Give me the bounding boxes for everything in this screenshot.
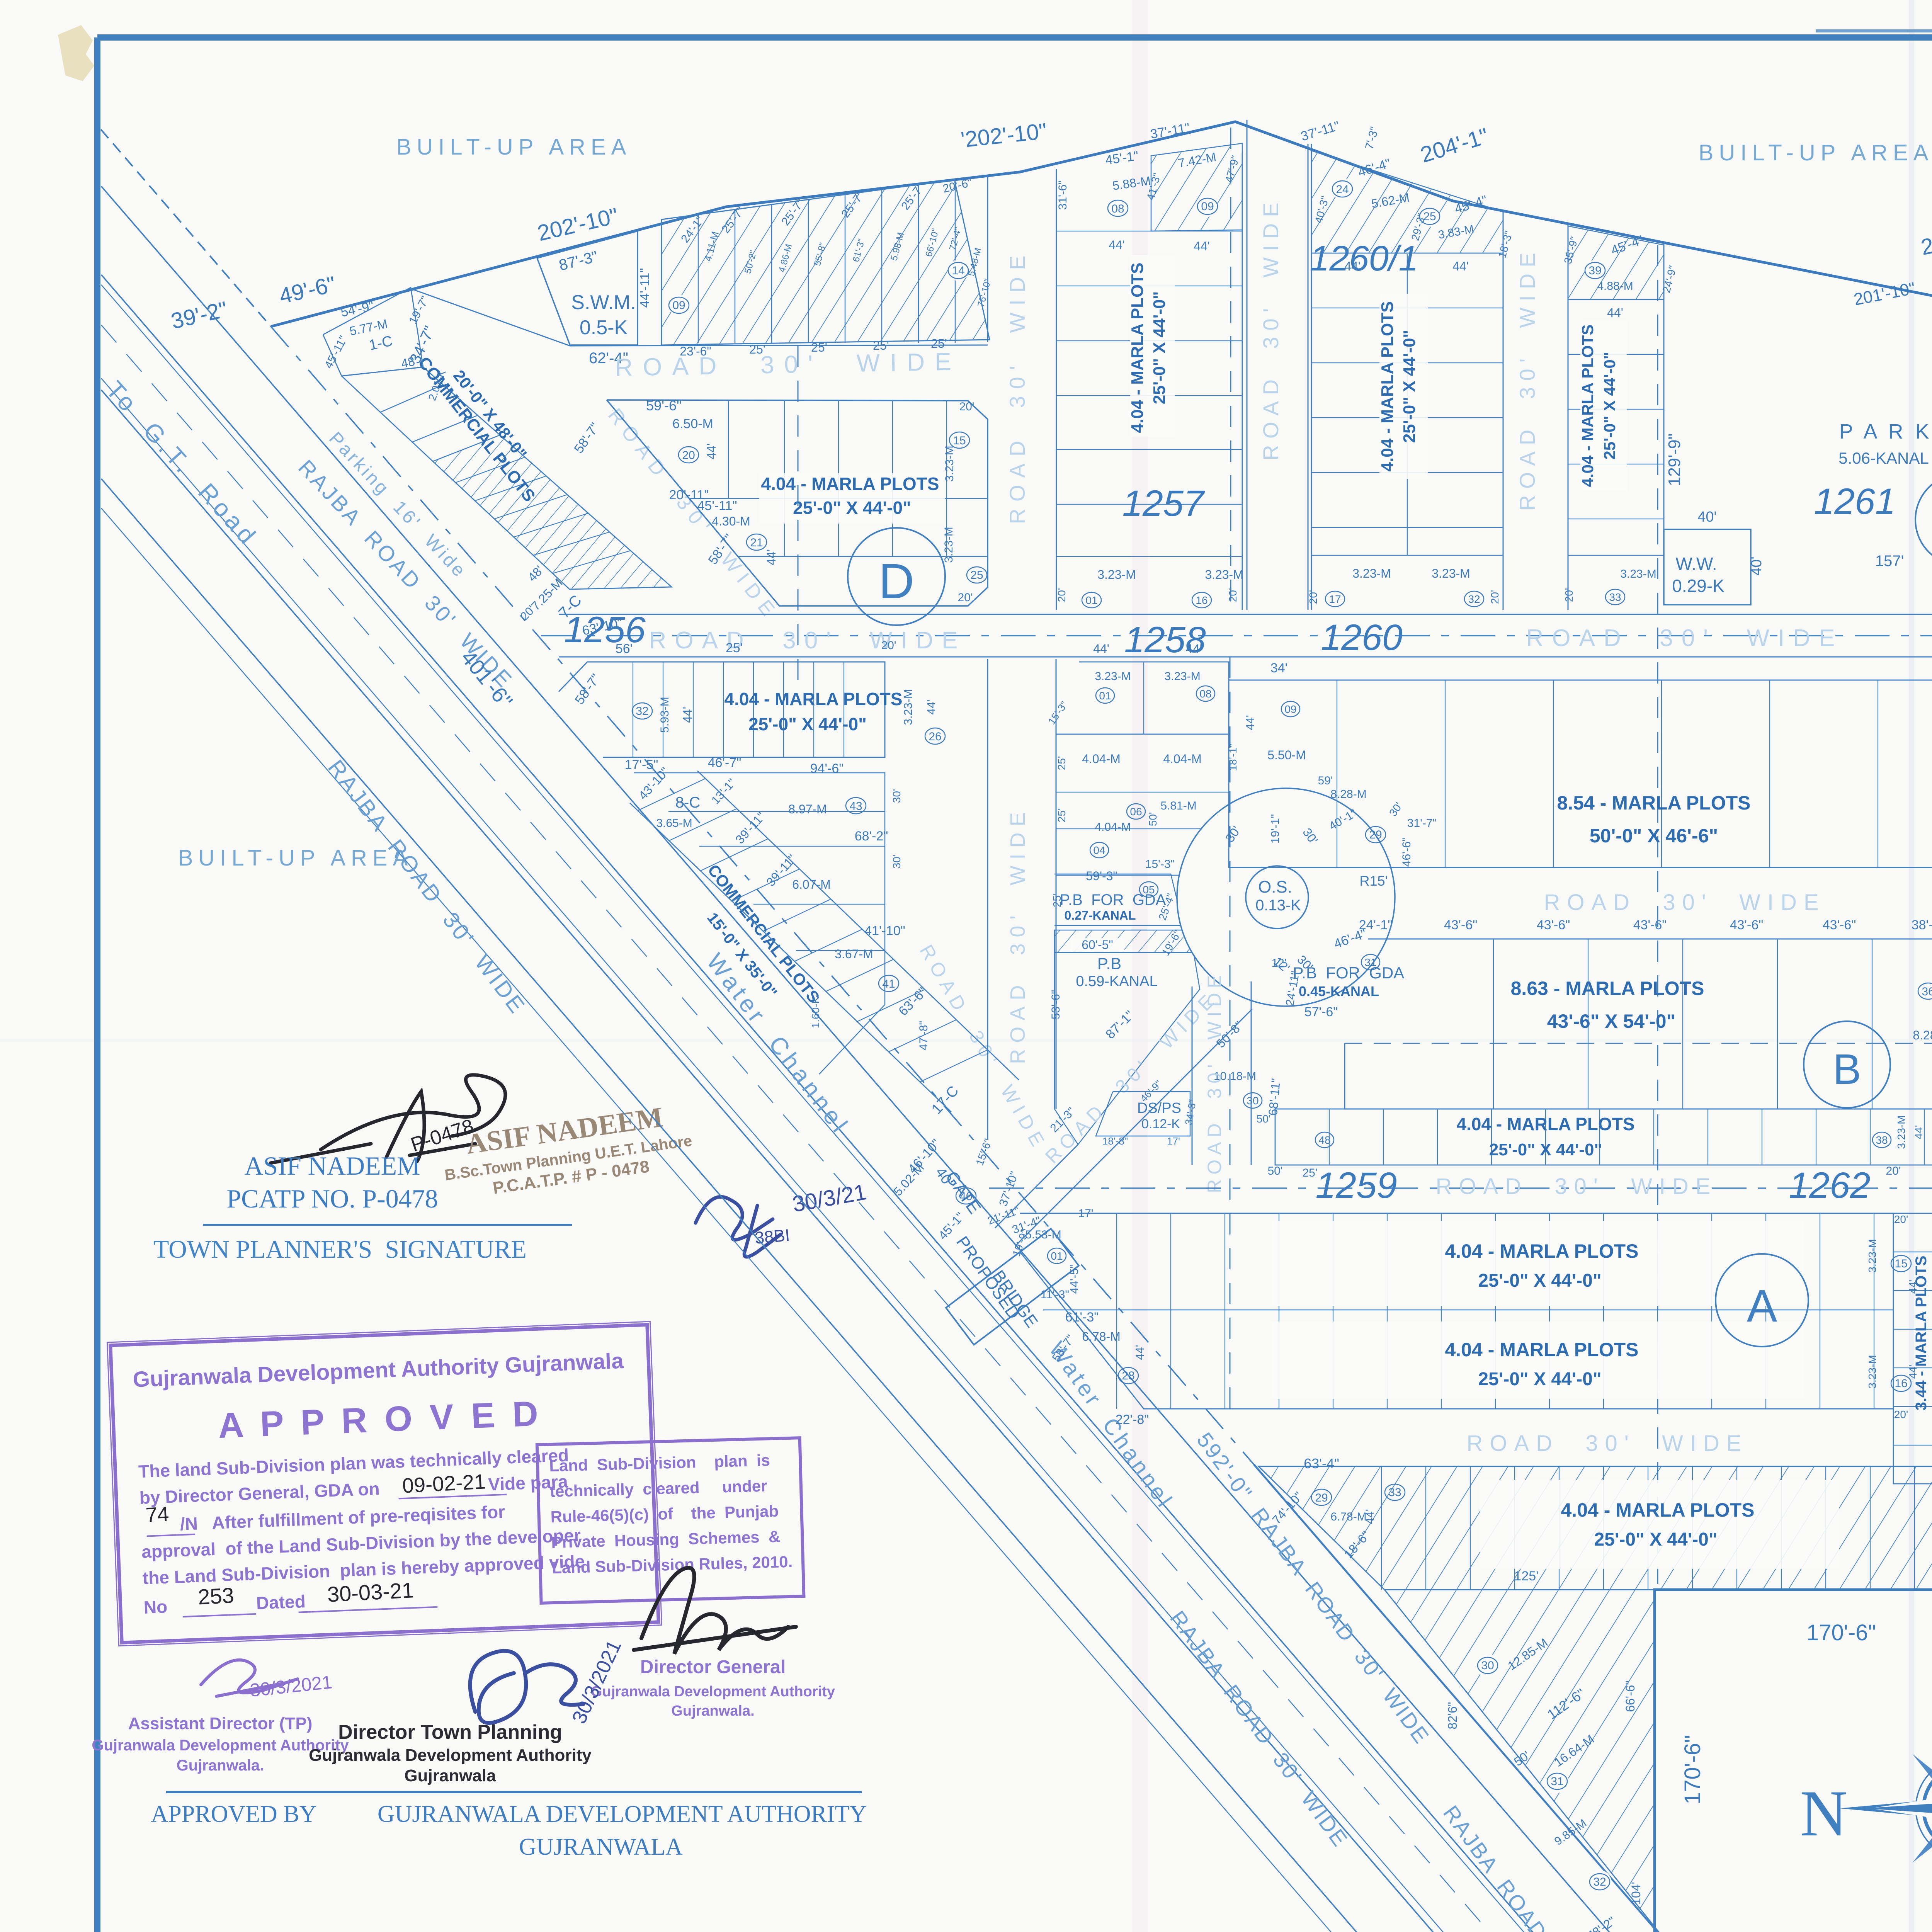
svg-text:ROAD 30' WIDE: ROAD 30' WIDE — [1005, 248, 1029, 524]
svg-text:Gujranwala Development Authori: Gujranwala Development Authority — [309, 1746, 592, 1765]
svg-text:1261: 1261 — [1814, 481, 1895, 522]
svg-text:104': 104' — [1629, 1882, 1643, 1905]
svg-text:ROAD 30' WIDE: ROAD 30' WIDE — [1544, 890, 1825, 915]
svg-text:19'-1": 19'-1" — [1269, 814, 1282, 844]
svg-text:P A R K: P A R K — [1839, 420, 1932, 443]
svg-text:3.44 - MARLA PLOTS: 3.44 - MARLA PLOTS — [1913, 1256, 1930, 1411]
svg-text:01: 01 — [1051, 1250, 1063, 1262]
svg-text:36: 36 — [1922, 985, 1932, 998]
svg-text:40: 40 — [959, 1190, 972, 1203]
svg-text:5.50-M: 5.50-M — [1267, 748, 1306, 762]
svg-text:APPROVED BY: APPROVED BY — [151, 1801, 317, 1827]
svg-text:38BI: 38BI — [754, 1226, 791, 1248]
svg-text:1260/1: 1260/1 — [1310, 239, 1418, 278]
svg-text:44': 44' — [1093, 642, 1109, 656]
svg-text:20': 20' — [1886, 1165, 1901, 1177]
svg-text:08: 08 — [1199, 688, 1211, 700]
svg-text:29: 29 — [1315, 1492, 1328, 1504]
svg-text:157': 157' — [1875, 553, 1904, 570]
svg-text:44': 44' — [1913, 1125, 1925, 1139]
svg-text:50': 50' — [1147, 812, 1159, 827]
svg-text:BUILT-UP AREA: BUILT-UP AREA — [1699, 140, 1932, 165]
svg-text:170'-6": 170'-6" — [1680, 1735, 1705, 1804]
svg-text:3.23-M: 3.23-M — [1164, 670, 1200, 683]
svg-text:30: 30 — [1481, 1659, 1494, 1672]
svg-text:43'-6" X 54'-0": 43'-6" X 54'-0" — [1547, 1010, 1675, 1032]
svg-text:4.04 - MARLA PLOTS: 4.04 - MARLA PLOTS — [761, 474, 939, 494]
svg-text:Assistant Director (TP): Assistant Director (TP) — [128, 1714, 313, 1733]
svg-text:1262: 1262 — [1789, 1165, 1870, 1206]
svg-text:5.93-M: 5.93-M — [658, 697, 671, 733]
svg-text:30': 30' — [891, 789, 903, 803]
svg-text:0.27-KANAL: 0.27-KANAL — [1065, 908, 1136, 922]
svg-text:60'-5": 60'-5" — [1082, 938, 1113, 952]
svg-text:43'-6": 43'-6" — [1823, 918, 1856, 932]
svg-text:25'-0" X 44'-0": 25'-0" X 44'-0" — [1600, 352, 1619, 459]
svg-text:125': 125' — [1514, 1569, 1538, 1583]
svg-text:8.28-M: 8.28-M — [1913, 1028, 1932, 1042]
svg-text:4.04 - MARLA PLOTS: 4.04 - MARLA PLOTS — [1445, 1339, 1639, 1361]
svg-text:44': 44' — [1364, 1509, 1376, 1524]
svg-text:25'-0" X 44'-0": 25'-0" X 44'-0" — [1478, 1369, 1601, 1389]
svg-text:GUJRANWALA: GUJRANWALA — [519, 1834, 683, 1860]
svg-text:44': 44' — [680, 707, 694, 723]
svg-text:1259: 1259 — [1315, 1165, 1397, 1206]
svg-text:44': 44' — [1452, 259, 1469, 273]
svg-text:09: 09 — [1284, 703, 1296, 715]
svg-text:44'-11": 44'-11" — [638, 268, 652, 308]
svg-text:17': 17' — [1167, 1135, 1180, 1147]
svg-text:17: 17 — [1329, 593, 1341, 605]
svg-text:44': 44' — [1134, 1345, 1146, 1360]
svg-text:63'-4": 63'-4" — [1304, 1456, 1339, 1471]
svg-text:25'-0" X 44'-0": 25'-0" X 44'-0" — [1594, 1529, 1717, 1550]
svg-text:61'-3": 61'-3" — [1065, 1310, 1099, 1325]
svg-text:TOWN PLANNER'S SIGNATURE: TOWN PLANNER'S SIGNATURE — [153, 1235, 527, 1264]
svg-text:0.59-KANAL: 0.59-KANAL — [1076, 973, 1157, 990]
svg-text:44'-5": 44'-5" — [1068, 1264, 1081, 1294]
svg-text:25'-0" X 44'-0": 25'-0" X 44'-0" — [1400, 330, 1419, 443]
svg-text:44': 44' — [1244, 715, 1257, 730]
svg-text:8.54 - MARLA PLOTS: 8.54 - MARLA PLOTS — [1557, 792, 1751, 814]
svg-text:57'-6": 57'-6" — [1304, 1005, 1338, 1019]
svg-text:0.45-KANAL: 0.45-KANAL — [1299, 983, 1379, 999]
svg-text:01: 01 — [1099, 690, 1111, 702]
svg-text:ROAD 30' WIDE: ROAD 30' WIDE — [649, 627, 966, 654]
svg-text:1257: 1257 — [1122, 483, 1205, 524]
svg-text:31'-7": 31'-7" — [1407, 817, 1437, 830]
svg-text:ROAD 30' WIDE: ROAD 30' WIDE — [1259, 196, 1283, 460]
svg-text:3.23-M: 3.23-M — [1352, 566, 1391, 580]
svg-text:ROAD 30' WIDE: ROAD 30' WIDE — [1515, 247, 1539, 510]
svg-text:5.81-M: 5.81-M — [1160, 799, 1196, 812]
svg-text:BUILT-UP AREA: BUILT-UP AREA — [178, 845, 413, 871]
svg-text:3.23-M: 3.23-M — [942, 527, 955, 563]
svg-text:D: D — [879, 554, 914, 609]
svg-text:Gujranwala.: Gujranwala. — [177, 1757, 264, 1774]
svg-text:170'-6": 170'-6" — [1806, 1620, 1876, 1645]
svg-text:31: 31 — [1551, 1775, 1563, 1788]
svg-text:66'-6": 66'-6" — [1623, 1680, 1637, 1712]
svg-text:0.13-K: 0.13-K — [1255, 897, 1301, 914]
svg-text:BUILT-UP AREA: BUILT-UP AREA — [396, 134, 632, 160]
svg-text:253: 253 — [197, 1583, 235, 1609]
svg-text:25: 25 — [970, 569, 983, 582]
svg-text:12': 12' — [1271, 957, 1286, 969]
svg-text:3.23-M: 3.23-M — [902, 689, 915, 725]
svg-text:25': 25' — [1056, 756, 1068, 770]
svg-text:94'-6": 94'-6" — [810, 761, 844, 776]
svg-text:129'-9": 129'-9" — [1665, 434, 1684, 486]
svg-text:41'-10": 41'-10" — [864, 923, 905, 938]
svg-text:30: 30 — [1247, 1095, 1259, 1107]
svg-text:41: 41 — [882, 978, 895, 990]
svg-text:PCATP NO. P-0478: PCATP NO. P-0478 — [226, 1184, 438, 1213]
svg-text:32: 32 — [636, 705, 648, 718]
svg-text:1.60-K: 1.60-K — [810, 996, 821, 1028]
svg-text:B: B — [1833, 1046, 1861, 1093]
svg-text:68'-2": 68'-2" — [855, 829, 888, 844]
svg-text:11'-3": 11'-3" — [1041, 1288, 1069, 1301]
svg-text:4.04 - MARLA PLOTS: 4.04 - MARLA PLOTS — [1578, 325, 1597, 487]
svg-text:4.30-M: 4.30-M — [712, 514, 750, 528]
svg-text:38'-6": 38'-6" — [1912, 918, 1932, 932]
svg-text:15: 15 — [953, 434, 966, 447]
svg-text:17': 17' — [1078, 1207, 1093, 1220]
svg-text:16: 16 — [1196, 594, 1207, 606]
svg-text:25': 25' — [1056, 808, 1068, 823]
svg-text:44': 44' — [704, 443, 718, 459]
svg-text:20': 20' — [1307, 590, 1319, 604]
svg-text:8.63 - MARLA PLOTS: 8.63 - MARLA PLOTS — [1511, 978, 1704, 999]
svg-text:A: A — [1747, 1281, 1777, 1332]
svg-text:74: 74 — [145, 1502, 169, 1527]
svg-text:08: 08 — [1111, 202, 1124, 215]
svg-text:30': 30' — [891, 855, 903, 869]
svg-text:09-02-21: 09-02-21 — [402, 1470, 486, 1497]
svg-text:44': 44' — [1194, 239, 1210, 253]
svg-text:4.04 - MARLA PLOTS: 4.04 - MARLA PLOTS — [724, 689, 903, 709]
svg-text:S.W.M.: S.W.M. — [571, 291, 636, 314]
svg-text:59'-6": 59'-6" — [646, 398, 682, 413]
svg-text:46'-7": 46'-7" — [708, 755, 742, 770]
svg-text:28: 28 — [1122, 1369, 1134, 1382]
svg-text:29: 29 — [1369, 828, 1382, 841]
svg-text:4.04 - MARLA PLOTS: 4.04 - MARLA PLOTS — [1457, 1114, 1635, 1134]
svg-text:50': 50' — [1267, 1165, 1282, 1177]
svg-text:20': 20' — [1056, 588, 1068, 602]
svg-text:3.23-M: 3.23-M — [1866, 1355, 1878, 1388]
svg-text:56': 56' — [616, 641, 633, 656]
svg-text:0.12-K: 0.12-K — [1141, 1117, 1180, 1131]
svg-text:3.23-M: 3.23-M — [1895, 1115, 1907, 1149]
svg-text:26: 26 — [929, 730, 941, 743]
svg-text:3.23-M: 3.23-M — [1432, 566, 1470, 580]
svg-text:40': 40' — [1697, 509, 1717, 525]
svg-text:25': 25' — [1051, 893, 1063, 908]
svg-text:33: 33 — [1609, 591, 1621, 603]
svg-text:6.07-M: 6.07-M — [792, 878, 831, 891]
svg-text:25'-0" X 44'-0": 25'-0" X 44'-0" — [1489, 1140, 1602, 1159]
svg-text:20': 20' — [1489, 590, 1501, 604]
svg-text:5.06-KANAL: 5.06-KANAL — [1838, 449, 1929, 467]
svg-text:W.W.: W.W. — [1675, 554, 1717, 574]
svg-text:16: 16 — [1895, 1377, 1907, 1390]
svg-text:20': 20' — [1563, 588, 1575, 602]
svg-text:25'-0" X 44'-0": 25'-0" X 44'-0" — [1478, 1270, 1601, 1291]
svg-text:59': 59' — [1318, 774, 1333, 787]
svg-text:09: 09 — [672, 299, 685, 312]
svg-text:3.23-M: 3.23-M — [1097, 568, 1136, 582]
svg-text:4.88-M: 4.88-M — [1597, 280, 1633, 293]
svg-text:8.97-M: 8.97-M — [788, 802, 827, 816]
svg-text:31: 31 — [1364, 956, 1376, 968]
svg-text:20': 20' — [1894, 1213, 1908, 1225]
svg-text:ROAD 30' WIDE: ROAD 30' WIDE — [1204, 971, 1225, 1193]
svg-text:3.65-M: 3.65-M — [656, 817, 692, 830]
svg-text:20': 20' — [1227, 588, 1239, 602]
svg-text:21: 21 — [750, 536, 763, 549]
svg-text:44': 44' — [1186, 642, 1202, 656]
svg-text:82'6": 82'6" — [1446, 1702, 1459, 1730]
svg-text:38: 38 — [1876, 1134, 1888, 1146]
svg-text:3.23-M: 3.23-M — [1866, 1239, 1878, 1272]
svg-text:39: 39 — [1588, 264, 1601, 277]
svg-text:50'-0" X 46'-6": 50'-0" X 46'-6" — [1590, 825, 1718, 847]
svg-text:06: 06 — [1130, 806, 1142, 818]
svg-text:01: 01 — [1085, 594, 1097, 606]
svg-text:48: 48 — [1318, 1134, 1330, 1146]
svg-text:20: 20 — [682, 449, 695, 462]
svg-text:15: 15 — [1895, 1257, 1907, 1270]
svg-text:44': 44' — [1607, 306, 1623, 320]
svg-text:53'-6": 53'-6" — [1049, 990, 1062, 1019]
svg-text:ROAD 30' WIDE: ROAD 30' WIDE — [1435, 1174, 1717, 1199]
svg-text:44': 44' — [764, 549, 778, 565]
svg-text:24: 24 — [1336, 183, 1349, 196]
svg-text:6.78-M: 6.78-M — [1330, 1510, 1366, 1523]
svg-text:17'-5": 17'-5" — [625, 757, 658, 772]
svg-text:4.04-M: 4.04-M — [1082, 752, 1121, 766]
svg-text:4.04 - MARLA PLOTS: 4.04 - MARLA PLOTS — [1561, 1499, 1755, 1521]
svg-text:N: N — [1800, 1777, 1848, 1850]
svg-text:44': 44' — [1109, 238, 1125, 252]
svg-text:43'-6": 43'-6" — [1537, 918, 1570, 932]
svg-text:43'-6": 43'-6" — [1444, 918, 1478, 932]
svg-text:P.B FOR GDA: P.B FOR GDA — [1060, 891, 1166, 908]
svg-text:43'-6": 43'-6" — [1730, 918, 1764, 932]
svg-text:ASIF NADEEM: ASIF NADEEM — [244, 1151, 420, 1180]
svg-text:43'-6": 43'-6" — [1633, 918, 1667, 932]
svg-text:40': 40' — [1748, 556, 1765, 576]
svg-text:15'-3": 15'-3" — [1145, 858, 1175, 871]
svg-text:P.B FOR GDA: P.B FOR GDA — [1293, 964, 1405, 982]
svg-text:46'-6": 46'-6" — [1400, 837, 1413, 867]
svg-text:1256: 1256 — [564, 609, 646, 650]
svg-text:O.S.: O.S. — [1258, 878, 1292, 896]
svg-text:30-03-21: 30-03-21 — [327, 1578, 414, 1607]
svg-text:4.04-M: 4.04-M — [1163, 752, 1202, 766]
svg-text:3.67-M: 3.67-M — [835, 947, 873, 961]
svg-text:ROAD 30' WIDE: ROAD 30' WIDE — [1466, 1431, 1748, 1456]
svg-text:Gujranwala Development Authori: Gujranwala Development Authority — [591, 1684, 835, 1700]
svg-text:Director Town Planning: Director Town Planning — [338, 1721, 562, 1743]
svg-text:44': 44' — [925, 699, 938, 714]
svg-text:4.04 - MARLA PLOTS: 4.04 - MARLA PLOTS — [1445, 1240, 1639, 1262]
svg-text:6.78-M: 6.78-M — [1082, 1330, 1121, 1344]
svg-text:20': 20' — [957, 591, 973, 604]
svg-text:6.50-M: 6.50-M — [672, 417, 713, 431]
svg-text:3.23-M: 3.23-M — [1095, 670, 1131, 683]
svg-text:4.04-M: 4.04-M — [1095, 821, 1131, 833]
svg-text:14: 14 — [952, 264, 964, 277]
svg-text:33: 33 — [1388, 1486, 1401, 1499]
svg-text:20': 20' — [1894, 1408, 1908, 1420]
svg-text:20': 20' — [881, 639, 896, 652]
svg-text:04: 04 — [1093, 844, 1105, 856]
svg-text:4.04 - MARLA PLOTS: 4.04 - MARLA PLOTS — [1128, 263, 1147, 433]
svg-text:0.5-K: 0.5-K — [580, 316, 628, 339]
svg-text:R15': R15' — [1360, 873, 1388, 889]
svg-text:25'-0" X 44'-0": 25'-0" X 44'-0" — [748, 714, 867, 734]
svg-text:1260: 1260 — [1321, 617, 1403, 658]
svg-text:32: 32 — [1468, 593, 1480, 605]
svg-text:8.28-M: 8.28-M — [1330, 788, 1366, 801]
svg-text:31'-6": 31'-6" — [1056, 180, 1069, 210]
svg-text:24'-1": 24'-1" — [1359, 918, 1393, 932]
svg-text:ROAD 30' WIDE: ROAD 30' WIDE — [1006, 806, 1029, 1064]
svg-text:09: 09 — [1201, 200, 1214, 213]
svg-text:43: 43 — [849, 800, 862, 813]
svg-text:20': 20' — [959, 400, 974, 413]
svg-text:45'-11": 45'-11" — [697, 498, 737, 513]
svg-text:ROAD 30' WIDE: ROAD 30' WIDE — [1526, 625, 1844, 651]
svg-text:25'-0" X 44'-0": 25'-0" X 44'-0" — [793, 498, 911, 518]
svg-text:25'-0" X 44'-0": 25'-0" X 44'-0" — [1150, 291, 1169, 405]
svg-text:Gujranwala.: Gujranwala. — [671, 1703, 754, 1719]
svg-text:59'-3": 59'-3" — [1086, 869, 1117, 883]
svg-text:3.23-M: 3.23-M — [1620, 568, 1656, 580]
svg-text:Director General: Director General — [640, 1657, 786, 1677]
svg-text:34': 34' — [1270, 661, 1287, 675]
svg-text:P.B: P.B — [1097, 954, 1121, 973]
svg-text:8-C: 8-C — [675, 794, 700, 811]
svg-text:GUJRANWALA DEVELOPMENT AUTHORI: GUJRANWALA DEVELOPMENT AUTHORITY — [378, 1801, 867, 1827]
svg-text:3.23-M: 3.23-M — [1205, 568, 1243, 582]
svg-text:3.23-M: 3.23-M — [943, 446, 956, 481]
svg-text:0.29-K: 0.29-K — [1672, 576, 1725, 596]
svg-text:4.04 - MARLA PLOTS: 4.04 - MARLA PLOTS — [1378, 301, 1397, 472]
svg-text:32: 32 — [1593, 1876, 1606, 1888]
svg-text:22'-8": 22'-8" — [1116, 1412, 1149, 1427]
svg-text:25': 25' — [726, 641, 743, 655]
svg-text:Gujranwala: Gujranwala — [404, 1766, 496, 1785]
svg-text:18'-8": 18'-8" — [1102, 1135, 1128, 1147]
